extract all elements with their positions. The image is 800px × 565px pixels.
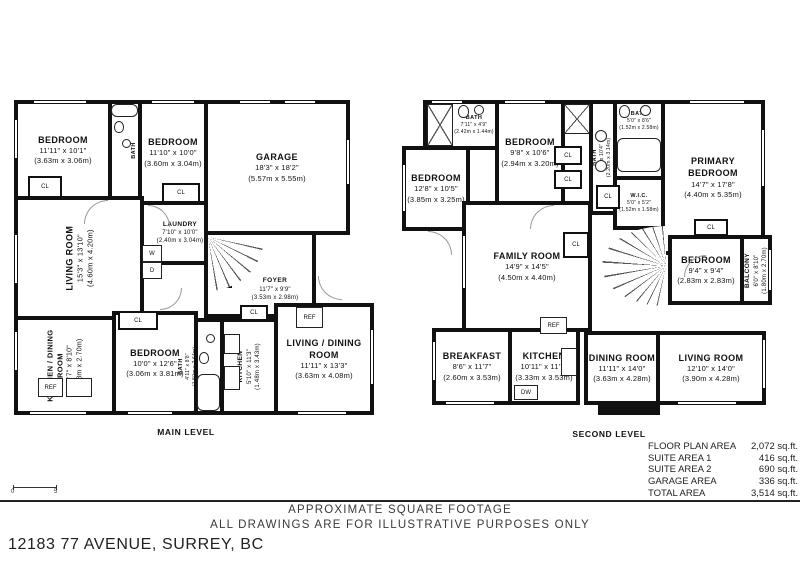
room-breakfast: BREAKFAST8'6" x 11'7"(2.60m x 3.53m) [432, 328, 512, 405]
window [346, 140, 350, 184]
window [298, 411, 346, 415]
closet: CL [596, 185, 620, 209]
closet: CL [118, 311, 158, 330]
scale-line [13, 487, 57, 488]
window [285, 100, 315, 104]
window [370, 330, 374, 384]
window [505, 100, 545, 104]
sink-icon [595, 160, 607, 172]
closet: CL [162, 183, 200, 203]
room-garage: GARAGE18'3" x 18'2"(5.57m x 5.55m) [204, 100, 350, 235]
stove-icon [561, 348, 577, 376]
porch-step [598, 403, 660, 415]
window [30, 411, 86, 415]
closet: CL [694, 219, 728, 236]
toilet-icon [199, 352, 209, 364]
toilet-icon [458, 105, 469, 118]
bathtub-icon [617, 138, 661, 172]
shower-icon [564, 104, 590, 134]
kitchen-sink-icon [224, 334, 240, 354]
closet: CL [240, 305, 268, 321]
second-level-label: SECOND LEVEL [566, 429, 652, 439]
area-row: GARAGE AREA336 sq.ft. [648, 476, 798, 488]
area-table: FLOOR PLAN AREA2,072 sq.ft. SUITE AREA 1… [648, 441, 798, 499]
divider-line [0, 500, 800, 502]
window [761, 130, 765, 186]
window [768, 250, 772, 290]
window [762, 340, 766, 388]
sink-icon [474, 105, 484, 115]
closet: CL [554, 146, 582, 165]
washer-icon: W [142, 245, 162, 262]
bathtub-icon [197, 374, 220, 411]
room-dining-room: DINING ROOM11'11" x 14'0"(3.63m x 4.28m) [584, 331, 660, 405]
closet: CL [554, 170, 582, 189]
window [432, 342, 436, 380]
room-kitchen-dining-main: KITCHEN / DINING ROOM12'7" x 8'10"(3.78m… [14, 316, 116, 415]
window [14, 235, 18, 283]
area-row: TOTAL AREA3,514 sq.ft. [648, 488, 798, 500]
area-row: SUITE AREA 1416 sq.ft. [648, 453, 798, 465]
scale-start-label: 0 [11, 489, 14, 495]
window [446, 401, 494, 405]
fridge-icon: REF [38, 378, 63, 397]
room-bedroom-6: BEDROOM9'4" x 9'4"(2.83m x 2.83m) [668, 235, 744, 305]
closet: CL [28, 176, 62, 198]
stove-icon [66, 378, 92, 397]
sink-icon [206, 334, 215, 343]
window [678, 401, 736, 405]
dishwasher-icon: DW [514, 385, 538, 400]
room-wic: W.I.C.5'0" x 5'2"(1.52m x 1.58m) [613, 176, 665, 230]
room-bedroom-4: BEDROOM12'8" x 10'5"(3.85m x 3.25m) [402, 146, 470, 231]
shower-icon [427, 104, 453, 146]
property-address: 12183 77 AVENUE, SURREY, BC [8, 536, 264, 554]
closet: CL [563, 232, 589, 258]
sink-icon [122, 139, 131, 148]
caption-disclaimer: ALL DRAWINGS ARE FOR ILLUSTRATIVE PURPOS… [0, 519, 800, 531]
window [462, 236, 466, 288]
window [14, 120, 18, 158]
scale-end-label: 5 [54, 489, 57, 495]
main-level-label: MAIN LEVEL [146, 427, 226, 437]
door-arc [160, 288, 182, 310]
room-living-dining-main: LIVING / DINING ROOM11'11" x 13'3"(3.63m… [274, 303, 374, 415]
bathtub-icon [111, 104, 138, 117]
sink-icon [640, 105, 651, 116]
room-living-room-main: LIVING ROOM15'3" x 13'10"(4.60m x 4.20m) [14, 196, 144, 320]
door-arc [318, 276, 342, 300]
window [402, 165, 406, 211]
sink-icon [595, 130, 607, 142]
window [152, 100, 194, 104]
fridge-icon: REF [296, 307, 323, 328]
dryer-icon: D [142, 262, 162, 279]
toilet-icon [619, 105, 630, 118]
window [14, 332, 18, 370]
stove-icon [224, 366, 240, 390]
window [34, 100, 86, 104]
room-family-room: FAMILY ROOM14'9" x 14'5"(4.50m x 4.40m) [462, 201, 592, 332]
fridge-icon: REF [540, 317, 567, 334]
area-row: SUITE AREA 2690 sq.ft. [648, 464, 798, 476]
room-living-room-second: LIVING ROOM12'10" x 14'0"(3.90m x 4.28m) [656, 331, 766, 405]
staircase-second [602, 226, 666, 306]
toilet-icon [114, 121, 124, 133]
door-arc [428, 231, 452, 255]
caption-square-footage: APPROXIMATE SQUARE FOOTAGE [0, 504, 800, 516]
window [690, 100, 744, 104]
area-row: FLOOR PLAN AREA2,072 sq.ft. [648, 441, 798, 453]
floor-plan-page: BEDROOM11'11" x 10'1"(3.63m x 3.06m) BAT… [0, 0, 800, 565]
window [240, 100, 270, 104]
window [128, 411, 172, 415]
